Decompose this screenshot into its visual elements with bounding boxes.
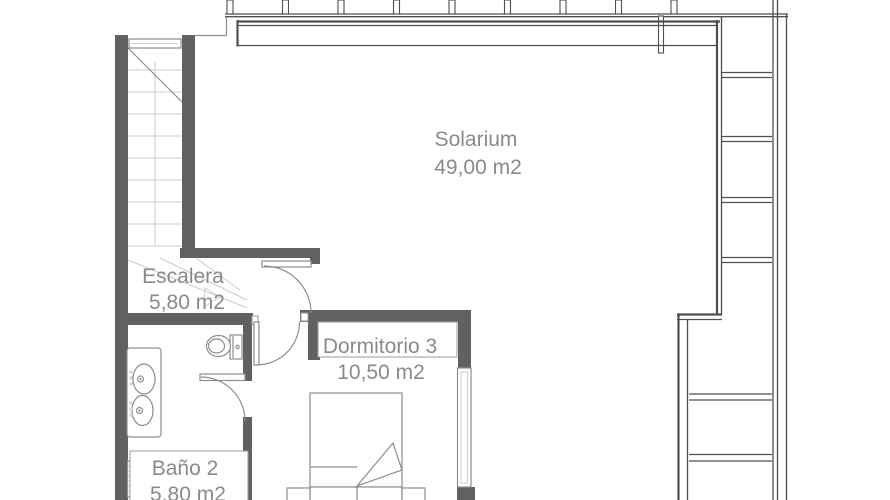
window-symbol — [458, 368, 472, 487]
bedroom-right-stub — [457, 487, 475, 500]
pergola-beam-icon — [227, 0, 677, 14]
solarium-door — [262, 261, 311, 313]
solarium-area-label: 49,00 m2 — [434, 156, 522, 179]
door-arc-symbol — [257, 322, 300, 365]
door-leaf — [254, 322, 259, 365]
door-arc-symbol — [201, 377, 245, 421]
hall-wall-horizontal — [180, 248, 320, 258]
door-jamb — [301, 313, 308, 321]
left-exterior-wall — [115, 35, 128, 500]
bedroom-top-wall — [300, 310, 471, 322]
pergola-right-strip — [689, 0, 787, 500]
solarium-label: Solarium — [435, 128, 518, 151]
escalera-label: Escalera — [142, 265, 224, 288]
nightstand-symbol — [287, 488, 310, 500]
bed-symbol — [310, 393, 402, 500]
floor-plan: Solarium 49,00 m2 Escalera 5,80 m2 Dormi… — [0, 0, 890, 500]
bedroom-area-label: 10,50 m2 — [337, 361, 425, 384]
door-arc-symbol — [264, 266, 311, 313]
bathroom-top-wall — [115, 313, 253, 325]
bathroom-label: Baño 2 — [152, 457, 219, 480]
bedroom-right-wall — [458, 322, 471, 368]
floor-plan-drawing: Solarium 49,00 m2 Escalera 5,80 m2 Dormi… — [0, 0, 890, 500]
toilet-symbol — [207, 335, 243, 359]
stairwell-right-wall — [182, 35, 195, 258]
double-sink-vanity-symbol — [127, 348, 161, 437]
terrace-step-outline — [195, 17, 227, 36]
bathroom-door — [200, 374, 245, 421]
nightstand-symbol — [402, 488, 425, 500]
window-symbol — [129, 39, 181, 48]
bedroom-label: Dormitorio 3 — [323, 335, 437, 358]
hall-wall-vertical-upper — [243, 313, 252, 381]
bathroom-area-label: 5,80 m2 — [150, 483, 226, 500]
bedroom-door — [254, 322, 300, 365]
escalera-area-label: 5,80 m2 — [149, 291, 225, 314]
